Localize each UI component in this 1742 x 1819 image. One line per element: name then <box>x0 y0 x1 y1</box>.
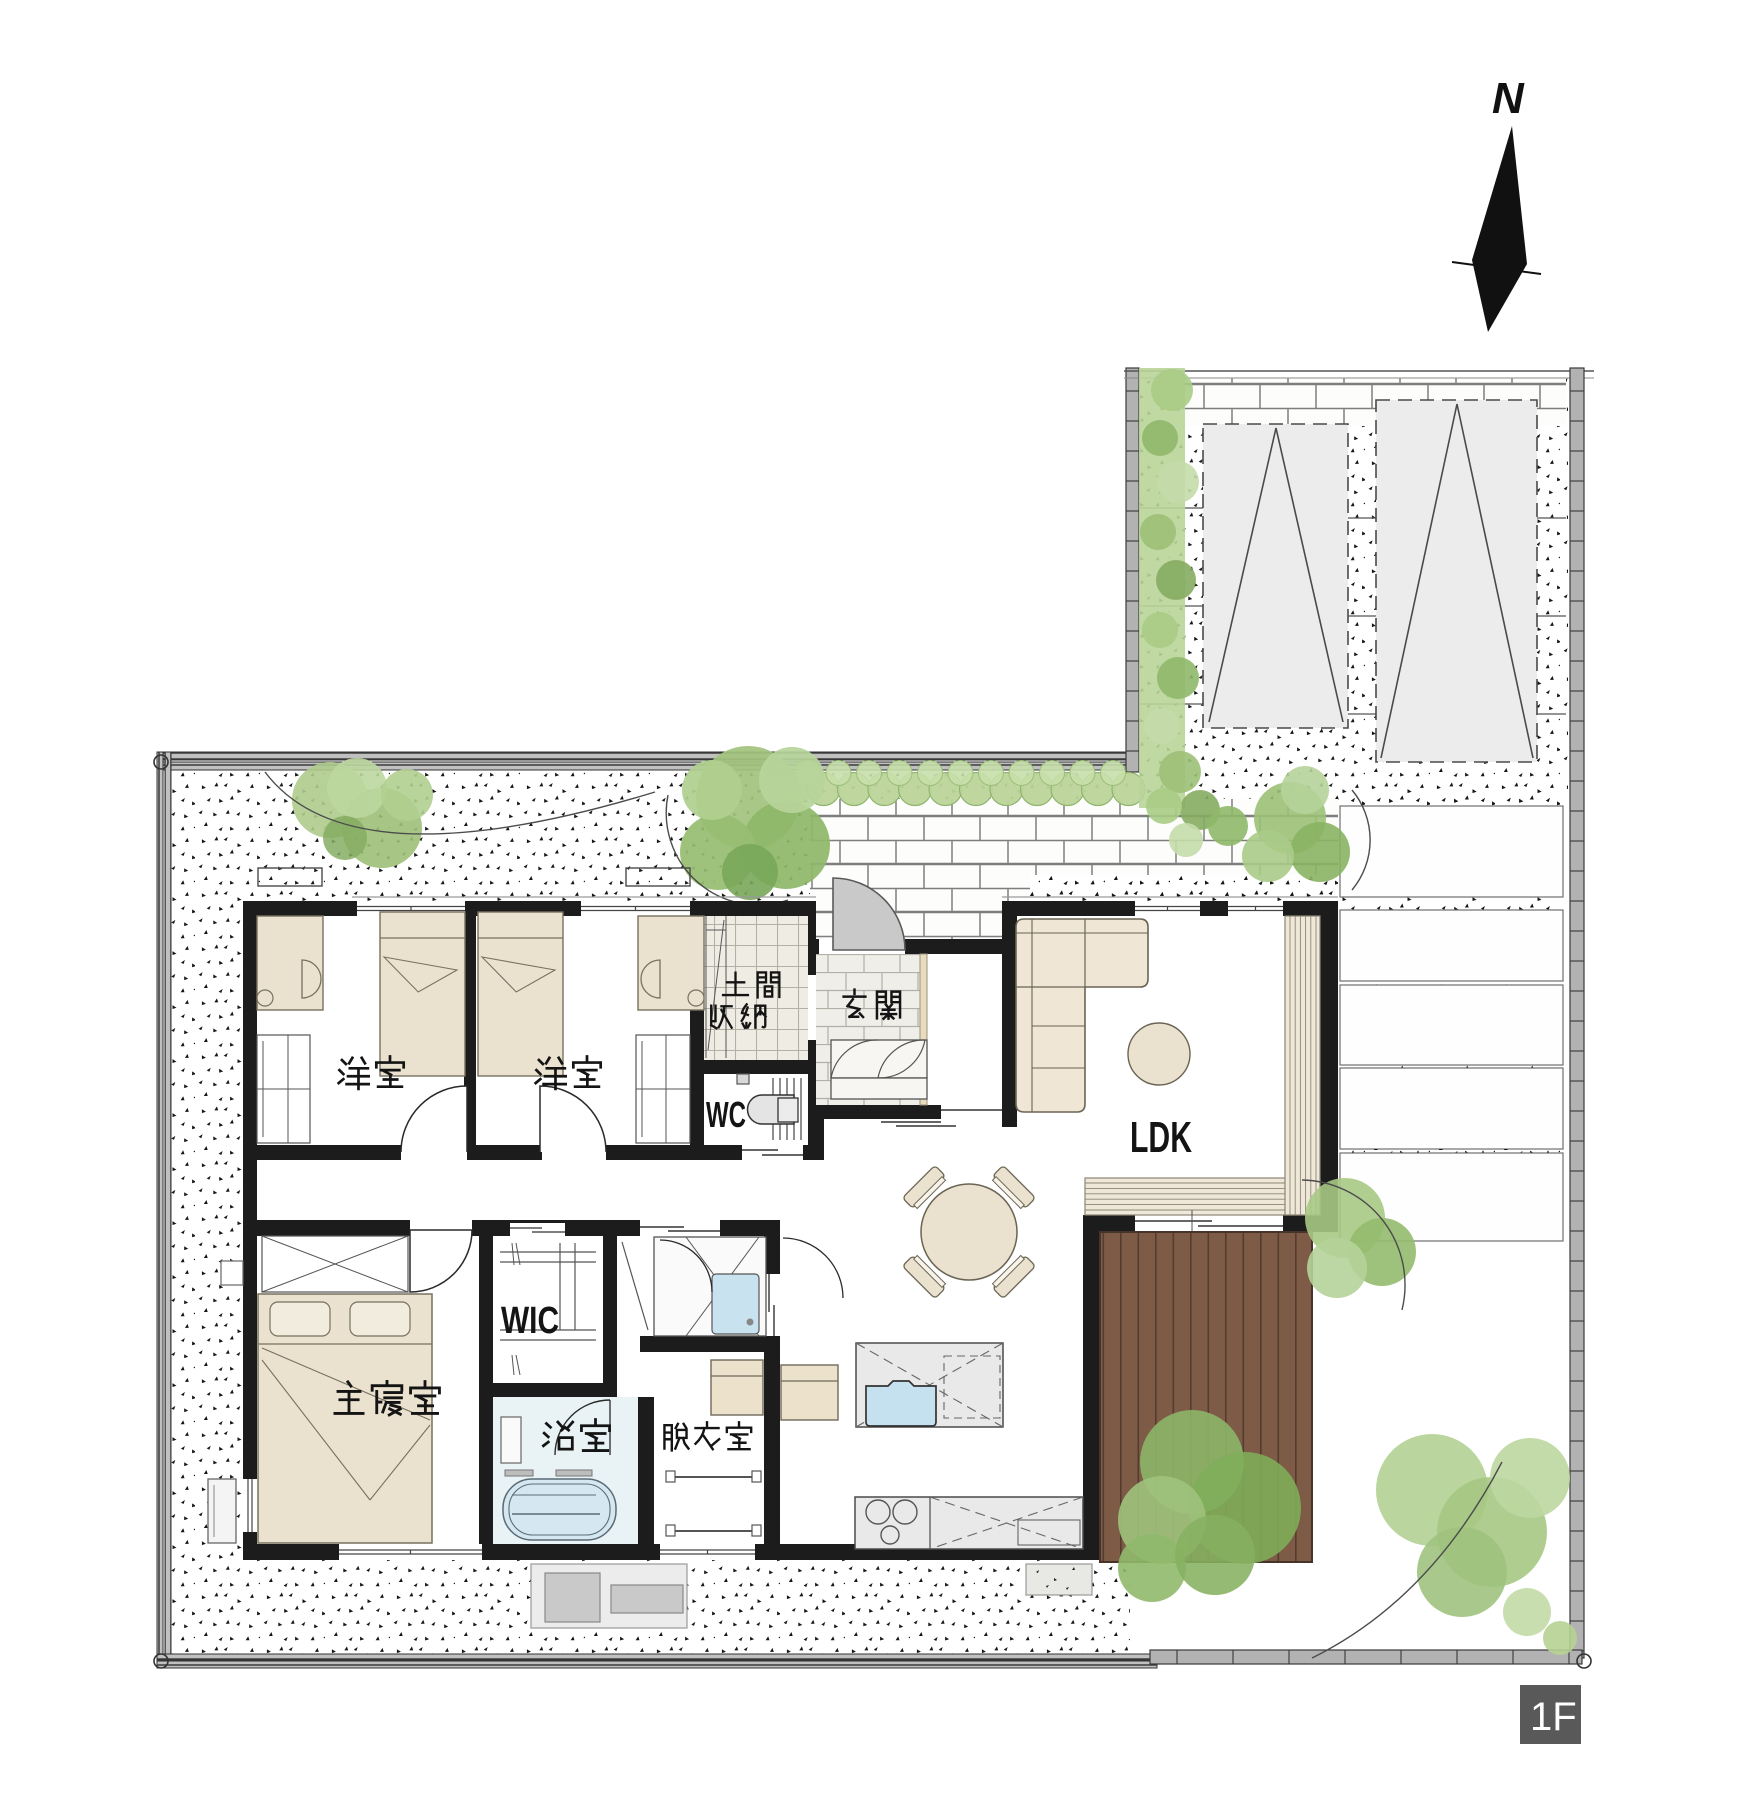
svg-text:1F: 1F <box>1530 1695 1577 1739</box>
svg-text:N: N <box>1492 74 1525 123</box>
svg-text:WIC: WIC <box>501 1300 559 1342</box>
svg-text:WC: WC <box>706 1094 746 1135</box>
svg-text:LDK: LDK <box>1130 1113 1192 1162</box>
